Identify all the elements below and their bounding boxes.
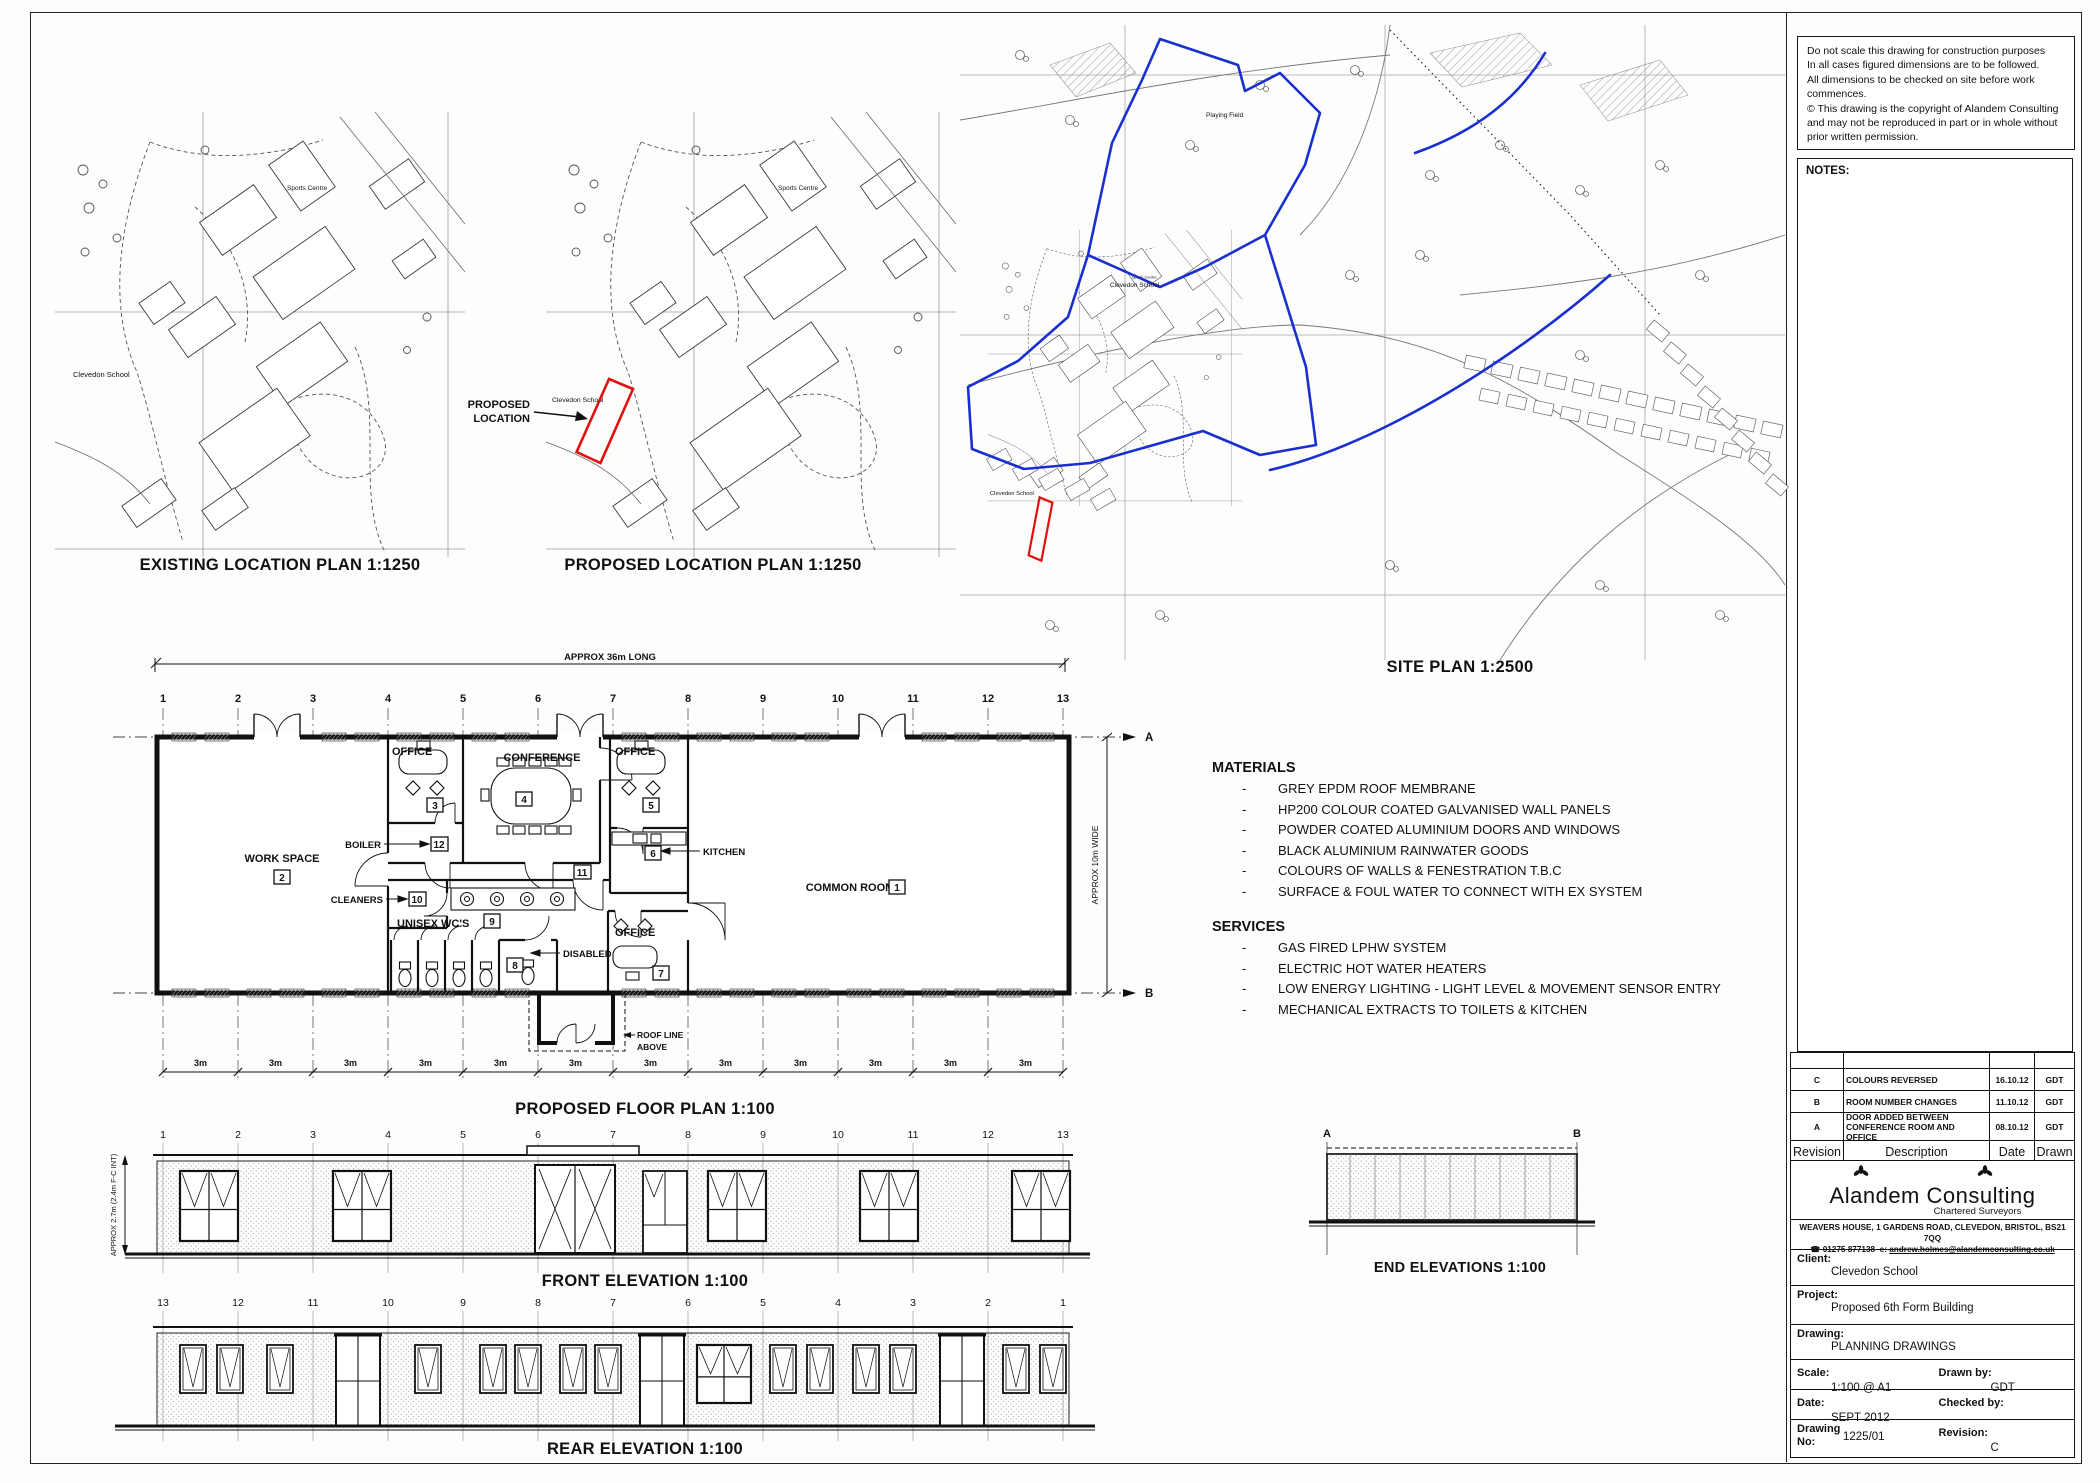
site-gridlines <box>960 25 1785 660</box>
grid-label: 9 <box>460 1297 466 1309</box>
existing-plan-title: EXISTING LOCATION PLAN 1:1250 <box>55 556 505 575</box>
front-elevation-title: FRONT ELEVATION 1:100 <box>140 1272 1150 1291</box>
revision-row: CCOLOURS REVERSED 16.10.12GDT <box>1791 1068 2074 1090</box>
bay-dim-label: 3m <box>944 1058 957 1068</box>
grid-label: 7 <box>610 693 616 705</box>
disclaimer-line: commences. <box>1807 87 2065 101</box>
height-dim-label: APPROX 2.7m (2.4m F-C INT) <box>109 1153 118 1256</box>
grid-label: 11 <box>907 693 919 705</box>
sports-centre-label: Sports Centre <box>287 185 327 192</box>
address-line: WEAVERS HOUSE, 1 GARDENS ROAD, CLEVEDON,… <box>1791 1222 2074 1244</box>
scale-section: Scale:1:100 @ A1 Drawn by:GDT <box>1791 1359 2074 1389</box>
grid-label: 5 <box>460 693 466 705</box>
svg-text:12: 12 <box>433 840 445 851</box>
grid-label: 8 <box>685 1129 691 1141</box>
list-item: -SURFACE & FOUL WATER TO CONNECT WITH EX… <box>1242 883 1787 901</box>
title-block: Alandem Consulting Chartered Surveyors W… <box>1790 1160 2075 1458</box>
svg-text:CONFERENCE: CONFERENCE <box>503 752 580 764</box>
client-value: Clevedon School <box>1831 1266 2068 1278</box>
grid-label: 2 <box>235 1129 241 1141</box>
front-elevation: 12345678910111213 APPROX 2.7m (2.4m F-C … <box>95 1125 1105 1275</box>
grid-label: 7 <box>610 1297 616 1309</box>
site-proposed-building <box>1029 497 1053 560</box>
marker-a: A <box>1323 1128 1331 1140</box>
entrance-lobby <box>529 993 625 1051</box>
grid-label: 5 <box>460 1129 466 1141</box>
bay-dim-label: 3m <box>794 1058 807 1068</box>
svg-text:WORK SPACE: WORK SPACE <box>245 853 320 865</box>
svg-text:OFFICE: OFFICE <box>615 746 655 758</box>
svg-text:5: 5 <box>648 801 654 812</box>
svg-text:KITCHEN: KITCHEN <box>703 847 745 858</box>
school-label-2: Clevedon School <box>990 491 1034 497</box>
revision-table: CCOLOURS REVERSED 16.10.12GDT BROOM NUMB… <box>1790 1052 2075 1163</box>
spec-notes: MATERIALS -GREY EPDM ROOF MEMBRANE -HP20… <box>1212 760 1787 1021</box>
grid-label: 2 <box>235 693 241 705</box>
leaf-icon <box>1853 1165 1869 1180</box>
company-name: Alandem Consulting <box>1791 1183 2074 1209</box>
grid-label: 5 <box>760 1297 766 1309</box>
disclaimer-panel: Do not scale this drawing for constructi… <box>1797 36 2075 150</box>
bay-dim-label: 3m <box>494 1058 507 1068</box>
proposed-location-highlight <box>577 379 633 463</box>
grid-label: 1 <box>160 1129 166 1141</box>
svg-text:8: 8 <box>512 961 518 972</box>
svg-text:11: 11 <box>577 868 588 879</box>
company-logo: Alandem Consulting Chartered Surveyors <box>1791 1161 2074 1219</box>
length-dim-label: APPROX 36m LONG <box>564 652 656 663</box>
list-item: -GREY EPDM ROOF MEMBRANE <box>1242 780 1787 798</box>
project-section: Project: Proposed 6th Form Building <box>1791 1285 2074 1324</box>
grid-label: 10 <box>832 693 844 705</box>
existing-location-plan: Sports Centre Clevedon School <box>55 112 465 557</box>
grid-label: 13 <box>157 1297 169 1309</box>
disclaimer-line: Do not scale this drawing for constructi… <box>1807 44 2065 58</box>
svg-text:CLEANERS: CLEANERS <box>331 895 383 906</box>
bay-dim-label: 3m <box>719 1058 732 1068</box>
bay-dim-label: 3m <box>1019 1058 1032 1068</box>
office7-desk <box>613 946 657 968</box>
svg-text:DISABLED: DISABLED <box>563 949 612 960</box>
grid-label: 13 <box>1057 1129 1069 1141</box>
services-heading: SERVICES <box>1212 919 1787 935</box>
svg-text:OFFICE: OFFICE <box>615 927 655 939</box>
ground-line <box>125 1254 1090 1258</box>
disclaimer-line: and may not be reproduced in part or in … <box>1807 116 2065 130</box>
wall-panels <box>1327 1154 1577 1220</box>
svg-text:OFFICE: OFFICE <box>392 746 432 758</box>
grid-label: 4 <box>385 693 392 705</box>
disclaimer-line: In all cases figured dimensions are to b… <box>1807 58 2065 72</box>
notes-panel: NOTES: <box>1797 158 2073 1052</box>
list-item: -HP200 COLOUR COATED GALVANISED WALL PAN… <box>1242 801 1787 819</box>
proposed-location-plan: Sports Centre Clevedon School PROPOSED L… <box>468 112 958 557</box>
width-dimension <box>1102 733 1112 997</box>
section-b-label: B <box>1145 988 1153 1000</box>
grid-label: 4 <box>835 1297 841 1309</box>
disclaimer-line: © This drawing is the copyright of Aland… <box>1807 102 2065 116</box>
drawing-section: Drawing: PLANNING DRAWINGS <box>1791 1324 2074 1359</box>
width-dim-label: APPROX 10m WIDE <box>1090 825 1100 904</box>
drawing-no-value: 1225/01 <box>1843 1431 1885 1454</box>
grid-label: 6 <box>535 693 541 705</box>
notes-label: NOTES: <box>1806 165 1849 177</box>
grid-label: 10 <box>382 1297 394 1309</box>
floor-plan: APPROX 36m LONG 12345678910111213 A B AP… <box>95 648 1195 1093</box>
revision-row: ADOOR ADDED BETWEEN CONFERENCE ROOM AND … <box>1791 1112 2074 1140</box>
end-elevations-title: END ELEVATIONS 1:100 <box>1295 1260 1625 1276</box>
ground-line <box>1309 1222 1595 1226</box>
revision-row: BROOM NUMBER CHANGES 11.10.12GDT <box>1791 1090 2074 1112</box>
site-roads <box>960 25 1785 660</box>
grid-label: 6 <box>535 1129 541 1141</box>
list-item: -ELECTRIC HOT WATER HEATERS <box>1242 960 1787 978</box>
bay-dim-label: 3m <box>569 1058 582 1068</box>
grid-label: 1 <box>160 693 166 705</box>
grid-label: 10 <box>832 1129 844 1141</box>
leaf-icon <box>1977 1165 1993 1180</box>
bay-dim-label: 3m <box>269 1058 282 1068</box>
marker-b: B <box>1573 1128 1581 1140</box>
svg-text:PROPOSED: PROPOSED <box>468 399 530 411</box>
grid-label: 11 <box>308 1297 319 1309</box>
site-hatch-areas <box>1050 33 1688 121</box>
svg-text:10: 10 <box>411 895 423 906</box>
svg-text:6: 6 <box>650 849 656 860</box>
client-section: Client: Clevedon School <box>1791 1249 2074 1284</box>
os-map-linework: Sports Centre <box>55 112 465 557</box>
list-item: -POWDER COATED ALUMINIUM DOORS AND WINDO… <box>1242 821 1787 839</box>
grid-label: 2 <box>985 1297 991 1309</box>
disclaimer-line: All dimensions to be checked on site bef… <box>1807 73 2065 87</box>
bay-dim-label: 3m <box>344 1058 357 1068</box>
materials-heading: MATERIALS <box>1212 760 1787 776</box>
bay-dim-label: 3m <box>644 1058 657 1068</box>
list-item: -LOW ENERGY LIGHTING - LIGHT LEVEL & MOV… <box>1242 980 1772 998</box>
site-plan-title: SITE PLAN 1:2500 <box>1110 658 1810 677</box>
kitchen-counter <box>612 832 686 845</box>
roof-note: ROOF LINE ABOVE <box>623 1030 684 1052</box>
svg-text:3: 3 <box>432 801 438 812</box>
grid-label: 9 <box>760 693 766 705</box>
bay-dim-label: 3m <box>869 1058 882 1068</box>
drawing-no-section: Drawing No:1225/01 Revision:C <box>1791 1419 2074 1457</box>
height-dimension <box>122 1155 128 1255</box>
school-label: Clevedon School <box>552 397 604 404</box>
grid-label: 3 <box>910 1297 916 1309</box>
drawing-sheet: Sports Centre Clevedon School EXISTING L… <box>0 0 2100 1483</box>
svg-text:COMMON ROOM: COMMON ROOM <box>806 882 895 894</box>
grid-label: 11 <box>908 1129 919 1141</box>
floor-plan-title: PROPOSED FLOOR PLAN 1:100 <box>95 1100 1195 1119</box>
site-plan: Sports Centre Clevedon School Clevedon S… <box>960 25 1785 660</box>
project-value: Proposed 6th Form Building <box>1831 1302 2068 1314</box>
grid-label: 6 <box>685 1297 691 1309</box>
date-section: Date:SEPT 2012 Checked by: <box>1791 1389 2074 1419</box>
entrance-canopy <box>527 1146 639 1155</box>
company-address: WEAVERS HOUSE, 1 GARDENS ROAD, CLEVEDON,… <box>1791 1219 2074 1249</box>
bay-dim-label: 3m <box>419 1058 432 1068</box>
grid-label: 7 <box>610 1129 616 1141</box>
svg-text:ROOF LINE: ROOF LINE <box>637 1030 684 1040</box>
ground-line <box>115 1426 1095 1430</box>
grid-label: 8 <box>685 693 691 705</box>
svg-text:UNISEX WC'S: UNISEX WC'S <box>397 918 469 930</box>
grid-label: 8 <box>535 1297 541 1309</box>
rear-elevation: 13121110987654321 <box>95 1293 1105 1443</box>
list-item: -MECHANICAL EXTRACTS TO TOILETS & KITCHE… <box>1242 1001 1787 1019</box>
school-label: Clevedon School <box>73 370 130 379</box>
list-item: -GAS FIRED LPHW SYSTEM <box>1242 939 1787 957</box>
list-item: -COLOURS OF WALLS & FENESTRATION T.B.C <box>1242 862 1787 880</box>
svg-text:2: 2 <box>279 873 285 884</box>
svg-text:ABOVE: ABOVE <box>637 1042 668 1052</box>
svg-text:1: 1 <box>894 883 900 894</box>
end-elevations: A B <box>1295 1100 1625 1260</box>
school-label: Clevedon School <box>1110 282 1160 289</box>
grid-label: 1 <box>1060 1297 1066 1309</box>
revision-value: C <box>1991 1442 2069 1454</box>
disclaimer-line: prior written permission. <box>1807 130 2065 144</box>
grid-label: 3 <box>310 1129 316 1141</box>
title-column-divider <box>1786 12 1787 1462</box>
entrance-doors <box>535 1165 687 1253</box>
list-item: -BLACK ALUMINIUM RAINWATER GOODS <box>1242 842 1787 860</box>
bay-dim-label: 3m <box>194 1058 207 1068</box>
rear-elevation-title: REAR ELEVATION 1:100 <box>140 1440 1150 1459</box>
grid-label: 12 <box>982 1129 994 1141</box>
proposed-plan-title: PROPOSED LOCATION PLAN 1:1250 <box>468 556 958 575</box>
grid-label: 4 <box>385 1129 391 1141</box>
grid-label: 12 <box>982 693 994 705</box>
section-a-label: A <box>1145 732 1153 744</box>
svg-text:4: 4 <box>521 795 527 806</box>
svg-text:9: 9 <box>489 917 495 928</box>
os-map-linework: Sports Centre <box>546 112 956 557</box>
drawing-value: PLANNING DRAWINGS <box>1831 1341 2068 1353</box>
grid-label: 3 <box>310 693 316 705</box>
grid-label: 9 <box>760 1129 766 1141</box>
svg-text:LOCATION: LOCATION <box>473 413 530 425</box>
svg-text:BOILER: BOILER <box>345 840 381 851</box>
revision-header-row: RevisionDescription DateDrawn <box>1791 1140 2074 1162</box>
playing-field-label: Playing Field <box>1206 112 1244 119</box>
svg-text:7: 7 <box>658 969 664 980</box>
sports-centre-label: Sports Centre <box>778 185 818 192</box>
grid-label: 12 <box>232 1297 244 1309</box>
grid-label: 13 <box>1057 693 1069 705</box>
